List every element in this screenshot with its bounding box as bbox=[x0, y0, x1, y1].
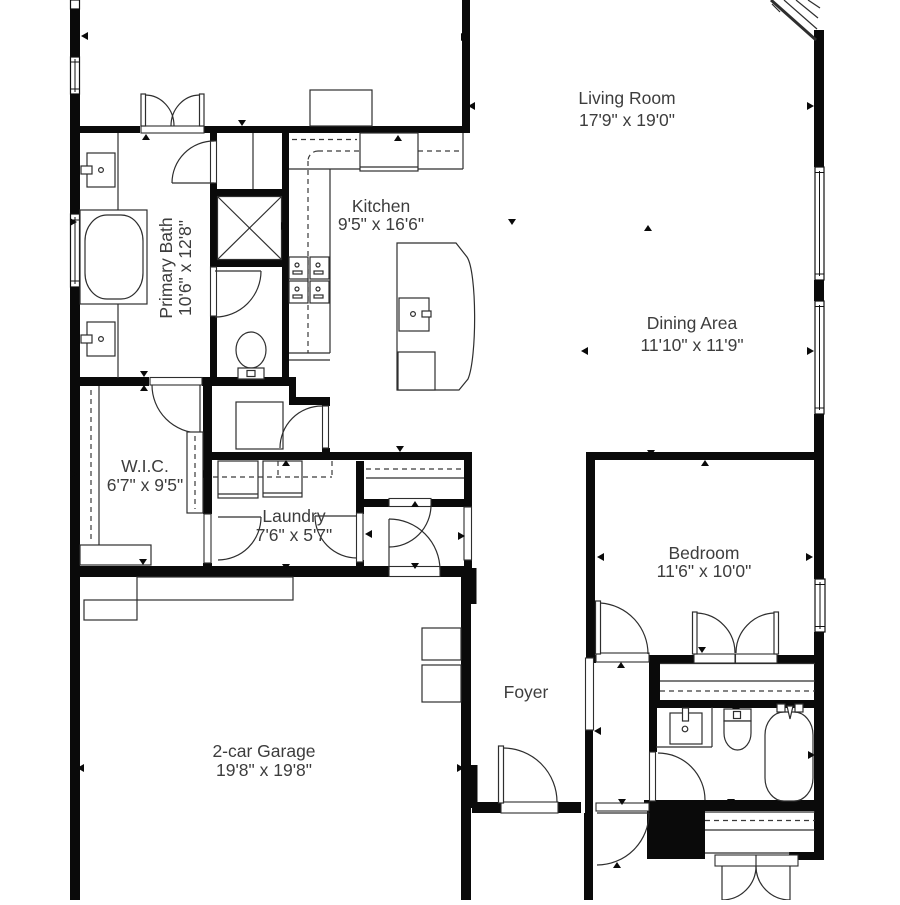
svg-text:9'5" x 16'6": 9'5" x 16'6" bbox=[338, 214, 424, 234]
svg-text:6'7" x 9'5": 6'7" x 9'5" bbox=[107, 475, 184, 495]
svg-text:2-car Garage: 2-car Garage bbox=[212, 741, 315, 761]
svg-text:19'8" x 19'8": 19'8" x 19'8" bbox=[216, 760, 312, 780]
svg-text:Foyer: Foyer bbox=[504, 682, 549, 702]
svg-text:Laundry: Laundry bbox=[262, 506, 325, 526]
svg-text:17'9" x 19'0": 17'9" x 19'0" bbox=[579, 110, 675, 130]
svg-text:Primary Bath: Primary Bath bbox=[156, 217, 176, 318]
svg-text:11'6" x 10'0": 11'6" x 10'0" bbox=[657, 561, 752, 581]
svg-text:Bedroom: Bedroom bbox=[668, 543, 739, 563]
svg-text:7'6" x 5'7": 7'6" x 5'7" bbox=[256, 525, 333, 545]
svg-text:11'10" x 11'9": 11'10" x 11'9" bbox=[640, 335, 743, 355]
svg-text:Living Room: Living Room bbox=[578, 88, 675, 108]
svg-text:W.I.C.: W.I.C. bbox=[121, 456, 169, 476]
svg-text:10'6" x 12'8": 10'6" x 12'8" bbox=[175, 220, 195, 316]
svg-text:Kitchen: Kitchen bbox=[352, 196, 410, 216]
svg-text:Dining Area: Dining Area bbox=[647, 313, 738, 333]
